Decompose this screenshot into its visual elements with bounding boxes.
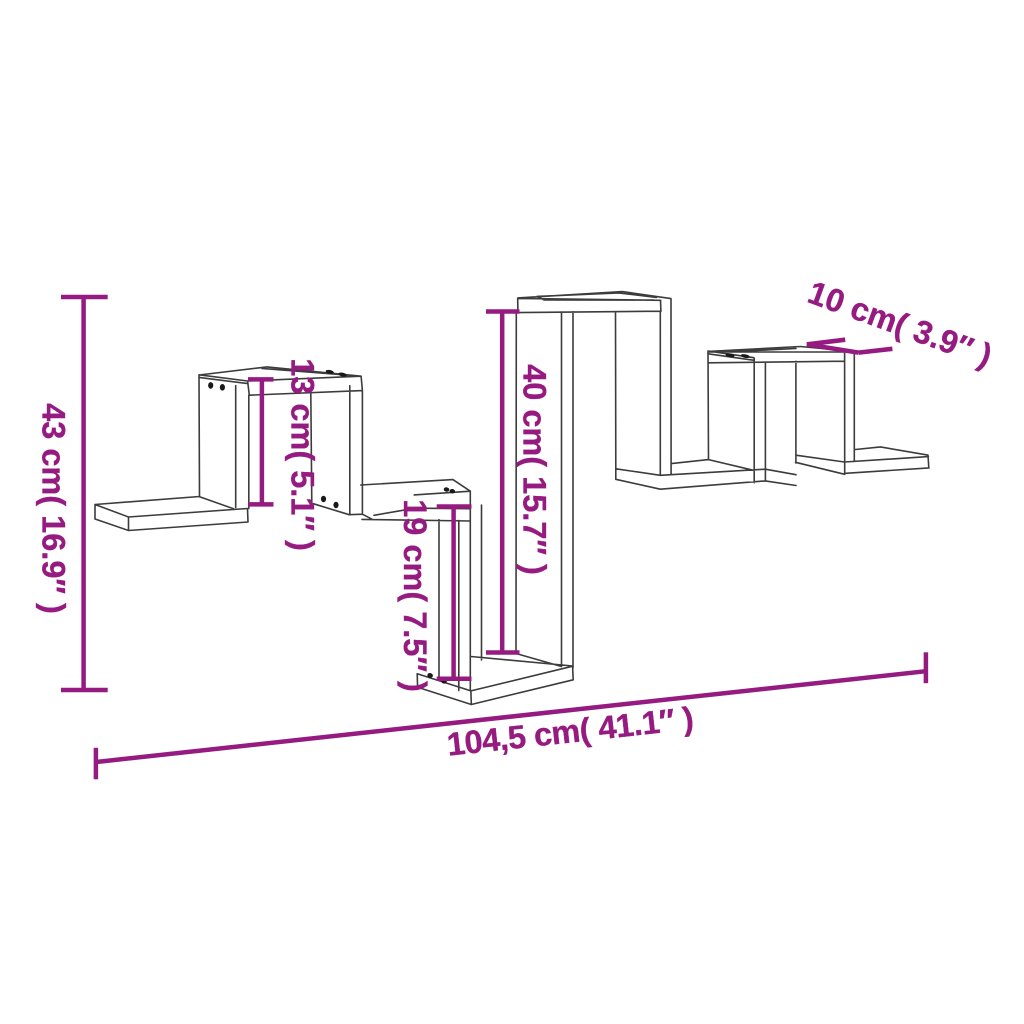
svg-text:19 cm( 7.5″ ): 19 cm( 7.5″ ) bbox=[397, 499, 433, 692]
svg-text:40 cm( 15.7″ ): 40 cm( 15.7″ ) bbox=[517, 364, 553, 575]
svg-text:13 cm( 5.1″ ): 13 cm( 5.1″ ) bbox=[284, 358, 320, 551]
svg-text:43 cm( 16.9″ ): 43 cm( 16.9″ ) bbox=[36, 403, 72, 614]
